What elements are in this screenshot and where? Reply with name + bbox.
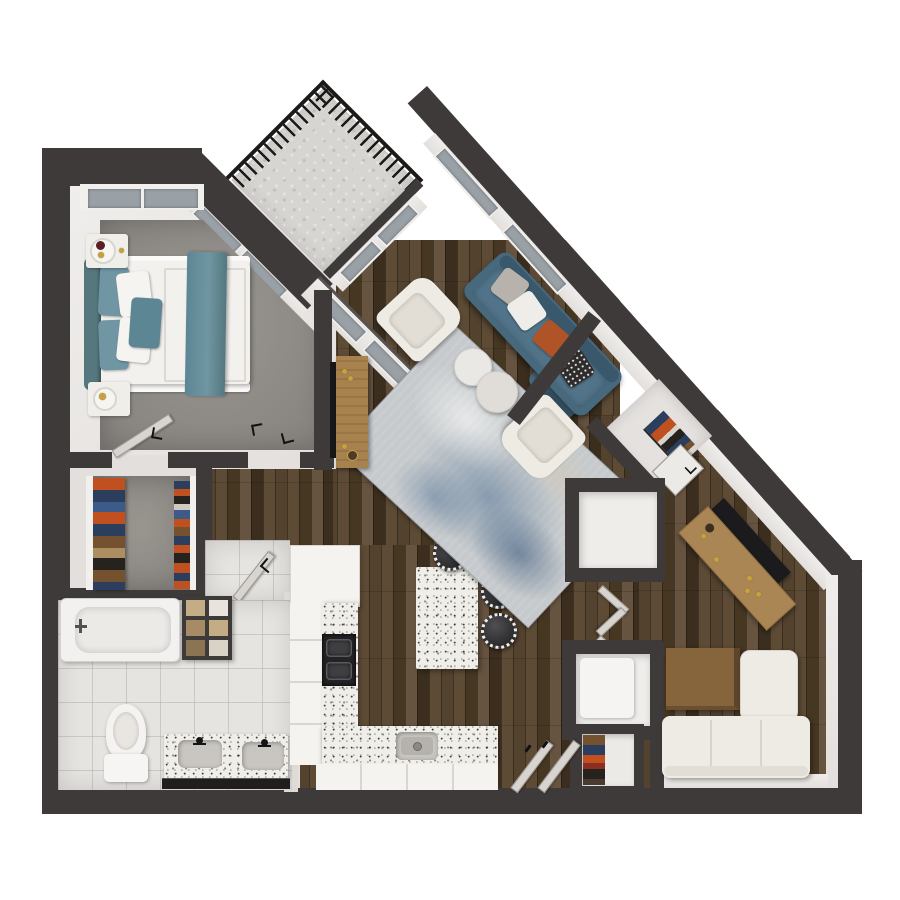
towel-2: [209, 600, 228, 616]
utility-closet-lower-interior: [576, 654, 650, 726]
washer-unit: [580, 658, 634, 718]
desk-gold-3: [746, 575, 753, 582]
sectional-seam-2: [760, 720, 762, 768]
kitchen-island: [416, 567, 478, 669]
bathtub-faucet-handle-icon: [79, 619, 82, 633]
bedroom-top-window-glass-1: [86, 187, 143, 210]
towel-6: [209, 640, 228, 656]
sectional-back-edge: [664, 766, 808, 776]
utility-closet-upper-interior: [579, 492, 657, 568]
towel-1: [186, 600, 205, 616]
desk-gold-5: [755, 591, 762, 598]
cooktop: [322, 634, 356, 686]
outer-wall-bottom: [42, 788, 862, 814]
door-swing-mark-2: [251, 423, 264, 436]
door-swing-mark-1: [151, 427, 164, 440]
south-cabinets: [316, 764, 498, 790]
bedroom-bottom-wall-seg3: [300, 452, 334, 468]
desk-gold-2: [713, 556, 720, 563]
kitchen-faucet-icon: [413, 742, 422, 751]
toilet-tank: [104, 754, 148, 782]
console-knob-2: [348, 376, 353, 381]
floor-plan-canvas: [0, 0, 900, 900]
hallway-floor: [203, 462, 333, 550]
closet-shelf-left: [86, 476, 93, 590]
desk-gold-1: [700, 533, 707, 540]
closet-hanging-clothes-left: [93, 478, 125, 590]
nightstand-top-gold-decor: [98, 252, 104, 258]
nightstand-top-gold-knob: [119, 248, 124, 253]
teal-accent-pillow: [128, 297, 162, 349]
nightstand-top: [86, 234, 128, 268]
burner-2-icon: [326, 662, 352, 680]
coffee-table-2: [476, 371, 518, 413]
outer-wall-right: [838, 560, 862, 812]
den-door-handle-mark: [685, 462, 697, 474]
bed-throw-blanket: [185, 252, 228, 397]
console-knob-1: [342, 369, 347, 374]
right-wall-inner-face: [826, 575, 838, 789]
nightstand-bottom-lamp: [93, 387, 117, 411]
sectional-seat: [662, 716, 810, 778]
burner-1-icon: [326, 639, 352, 657]
closet-hanging-clothes-right: [174, 481, 190, 589]
vanity-faucet-2-stem: [258, 745, 271, 747]
towel-shelf: [182, 596, 232, 660]
bathtub: [60, 598, 180, 662]
kitchen-sink: [396, 732, 438, 760]
bar-stool-3: [481, 613, 517, 649]
bed: [84, 254, 254, 394]
console-knob-3: [342, 444, 347, 449]
towel-5: [186, 640, 205, 656]
towel-3: [186, 620, 205, 636]
desk-gold-4: [744, 587, 751, 594]
balcony-railing-left-icon: [223, 80, 338, 195]
bathtub-basin: [75, 607, 171, 653]
bedroom-bottom-wall-seg1: [42, 452, 112, 468]
den-table: [666, 648, 740, 710]
vanity-faucet-1-stem: [193, 743, 206, 745]
nightstand-top-flowers: [96, 241, 105, 250]
media-console: [336, 356, 368, 468]
nightstand-bottom-lamp-base: [99, 393, 106, 400]
towel-4: [209, 620, 228, 636]
console-decor-bowl: [347, 450, 358, 461]
toilet-seat: [113, 712, 139, 750]
linen-stack: [583, 735, 605, 785]
nightstand-bottom: [88, 382, 130, 416]
sectional-seam-1: [710, 720, 712, 768]
desk-decor-dark: [703, 522, 716, 535]
hallway-tile: [205, 540, 290, 602]
vanity-mirror: [162, 778, 290, 789]
bedroom-top-window-glass-2: [142, 187, 200, 210]
west-cabinets: [290, 603, 322, 765]
sectional-back-block: [740, 650, 798, 722]
refrigerator: [290, 545, 360, 607]
outer-wall-top: [42, 148, 202, 186]
closet-shelf-right: [190, 476, 196, 590]
